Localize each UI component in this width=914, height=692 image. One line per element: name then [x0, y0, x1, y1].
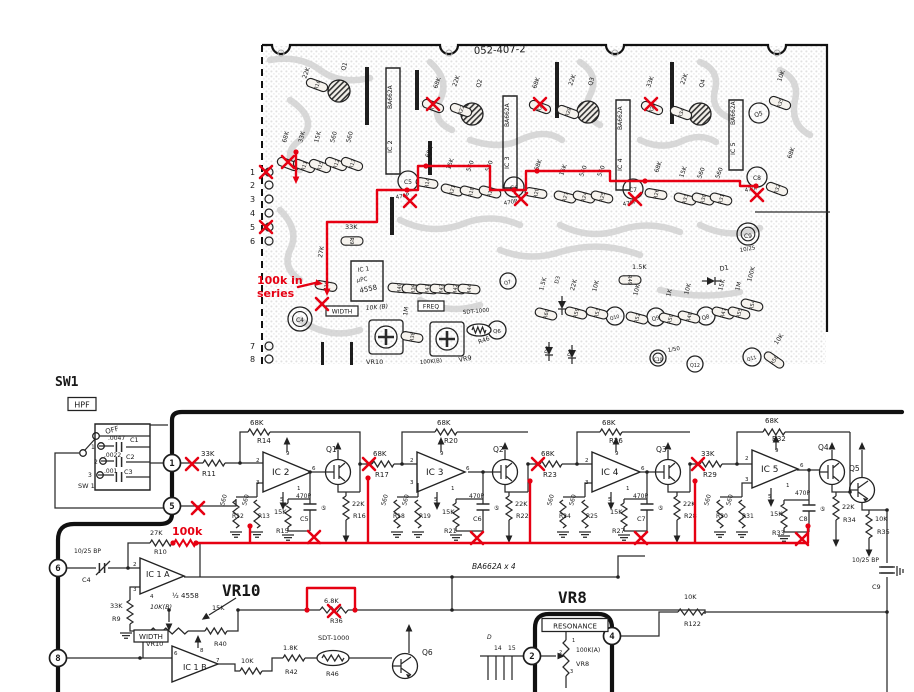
schematic-t-246: Q4 [818, 443, 829, 452]
schematic-dot-295 [170, 540, 175, 545]
schematic-t-264: 15K [212, 604, 225, 612]
pcb-t-143: IC 5 [729, 142, 737, 155]
sw1-title: SW1 [55, 375, 79, 390]
pad-2-label: 2 [250, 181, 255, 190]
schematic-t-258: 33K [110, 602, 123, 610]
r49-component: R49 [619, 275, 641, 285]
width-box: WIDTH [332, 309, 353, 316]
schematic-t-145: 3 [88, 472, 92, 479]
schematic-t-200: R23 [543, 471, 557, 479]
schematic-t-151: .001 [104, 468, 118, 475]
schematic-t-215: R27 [612, 527, 625, 535]
vr8-title: VR8 [558, 588, 587, 607]
scanned-service-manual-page: 12345678R16R17R22R23R28R29R34R35R32R11R1… [0, 0, 914, 692]
schematic-t-183: 9 [440, 451, 444, 457]
schematic-t-228: 3 [745, 477, 749, 483]
schematic-t-259: R9 [112, 615, 121, 623]
schematic-t-253: IC 1 A [146, 570, 170, 579]
q4-body [689, 103, 711, 125]
schematic-t-289: 10K [684, 593, 697, 601]
schematic-t-239: 470P [795, 490, 810, 497]
ba662a-note: BA662A x 4 [472, 562, 516, 571]
schematic-t-263: VR10 [146, 640, 163, 648]
schematic-t-149: .0022 [104, 452, 121, 459]
schematic-t-173: 22K [352, 500, 365, 508]
hpf-box: HPF [74, 400, 90, 409]
schematic-t-272: R42 [285, 668, 298, 676]
pcb-rect-23 [415, 70, 419, 110]
pcb-dot-217 [404, 187, 409, 192]
schematic-jd-128 [885, 610, 889, 614]
schematic-t-154: R11 [202, 470, 216, 478]
schematic-t-248: 10/25 BP [74, 548, 101, 555]
node-6: 6 [55, 564, 60, 574]
pad-8-label: 8 [250, 355, 255, 364]
schematic-t-196: 22K [515, 500, 528, 508]
schematic-t-223: R29 [703, 471, 717, 479]
pcb-t-205: C10 [654, 357, 663, 363]
schematic-dot-296 [193, 540, 198, 545]
node-8: 8 [55, 654, 60, 664]
pcb-t-212: Q12 [690, 363, 700, 369]
schematic-t-240: ⑤ [820, 506, 825, 513]
schematic-jd-116 [358, 462, 362, 466]
schematic-t-208: 6 [641, 466, 645, 472]
schematic-t-203: IC 4 [601, 468, 619, 478]
schematic-t-170: 470P [296, 493, 311, 500]
pcb-dot-219 [511, 187, 516, 192]
schematic-t-242: 22K [842, 503, 855, 511]
pcb-t-204: C4 [296, 317, 304, 324]
schematic-t-268: 8 [200, 648, 204, 654]
schematic-t-174: R16 [353, 512, 366, 520]
schematic-t-231: 6 [800, 463, 804, 469]
schematic-t-168: 15K [274, 508, 287, 516]
pcb-t-206: Q6 [493, 329, 501, 335]
schematic-t-257: ½ 4558 [172, 592, 199, 600]
mod-note-line1: 100k in [257, 274, 303, 287]
schematic-t-194: ⑤ [494, 505, 499, 512]
schematic-t-238: R33 [772, 529, 785, 537]
schematic-t-207: 5 [608, 497, 612, 503]
q1-body [328, 80, 350, 102]
schematic-jd-130 [450, 608, 454, 612]
schematic-jd-119 [575, 462, 579, 466]
schematic-dot-302 [304, 607, 309, 612]
schematic-t-267: 6 [174, 651, 178, 657]
pcb-t-168: 33K [345, 223, 358, 231]
schematic-t-157: IC 2 [272, 468, 290, 478]
mod-note-line2: series [257, 287, 295, 300]
schematic-t-156: R14 [257, 437, 271, 445]
schematic-t-161: 5 [280, 497, 284, 503]
pcb-t-127: BA662A [387, 84, 394, 109]
pcb-dot-221 [642, 178, 647, 183]
schematic-t-214: 15K [610, 508, 623, 516]
pcb-t-133: IC 3 [503, 156, 511, 169]
pcb-dot-222 [753, 183, 758, 188]
schematic-t-290: R122 [684, 620, 701, 628]
schematic-t-155: 68K [250, 419, 264, 427]
schematic-t-236: R31 [742, 513, 754, 520]
schematic-t-206: 9 [615, 451, 619, 457]
schematic-t-199: 68K [541, 450, 555, 458]
schematic-t-217: ⑤ [658, 505, 663, 512]
schematic-t-195: C6 [473, 515, 482, 523]
schematic-t-218: C7 [637, 515, 646, 523]
schematic-t-143: 1 [91, 444, 95, 451]
schematic-jd-113 [126, 566, 130, 570]
schematic-dot-299 [527, 478, 532, 483]
schematic-t-237: 15K [770, 510, 783, 518]
schematic-t-229: 9 [775, 448, 779, 454]
schematic-t-186: 1 [451, 486, 455, 492]
schematic-t-150: C2 [126, 453, 135, 461]
schematic-jd-118 [526, 462, 530, 466]
schematic-jd-117 [400, 462, 404, 466]
schematic-t-190: R19 [419, 513, 431, 520]
schematic-t-244: 10K [875, 515, 888, 523]
schematic-jd-115 [238, 461, 242, 465]
schematic-t-280: 14 [494, 645, 502, 652]
schematic-t-288: 3 [570, 669, 573, 675]
pcb-dot-218 [423, 163, 428, 168]
schematic-t-175: Q1 [326, 445, 337, 454]
schematic-dot-301 [805, 523, 810, 528]
schematic-t-180: IC 3 [426, 468, 444, 478]
schematic-t-213: R25 [586, 513, 598, 520]
schematic-t-188: R18 [393, 513, 405, 520]
schematic-t-209: 1 [626, 486, 630, 492]
pcb-dot-216 [293, 149, 298, 154]
schematic-jd-127 [885, 508, 889, 512]
schematic-t-202: R26 [609, 437, 623, 445]
schematic-t-171: ⑤ [321, 505, 326, 512]
schematic-t-181: 2 [410, 458, 414, 464]
pcb-t-137: BA662A [617, 105, 624, 130]
schematic-t-285: VR8 [576, 660, 589, 668]
schematic-t-198: Q2 [493, 445, 504, 454]
schematic-jd-120 [688, 462, 692, 466]
pad-5-label: 5 [250, 223, 255, 232]
schematic-jd-125 [807, 468, 811, 472]
freq-box: FREQ [423, 304, 439, 311]
schematic-t-227: 2 [745, 456, 749, 462]
schematic-t-277: R36 [330, 617, 343, 625]
pad-3-label: 3 [250, 195, 255, 204]
node-5: 5 [169, 502, 174, 512]
pcb-t-128: IC 2 [386, 140, 394, 153]
schematic-t-230: 5 [768, 494, 772, 500]
schematic-t-146: SW 1 [78, 482, 95, 490]
pad-7-label: 7 [250, 342, 255, 351]
schematic-t-269: 7 [216, 658, 220, 664]
schematic-jd-121 [735, 462, 739, 466]
schematic-t-163: 1 [297, 486, 301, 492]
schematic-t-169: R15 [276, 527, 289, 535]
schematic-t-192: R21 [444, 527, 457, 535]
pad-6-label: 6 [250, 237, 255, 246]
schematic-t-226: IC 5 [761, 465, 779, 475]
schematic-t-292: C9 [872, 583, 881, 591]
schematic-t-225: R32 [772, 435, 786, 443]
schematic-t-204: 2 [585, 458, 589, 464]
mod-100k-label: 100k [172, 525, 203, 538]
schematic-t-250: 27K [150, 529, 163, 537]
schematic-t-167: R13 [258, 513, 270, 520]
schematic-jd-129 [450, 575, 454, 579]
schematic-t-162: 6 [312, 466, 316, 472]
schematic-jd-131 [616, 575, 620, 579]
pcb-t-175: VR10 [366, 358, 383, 366]
pcb-pill-112-label: R44 [467, 283, 474, 294]
schematic-t-144: 2 [94, 459, 98, 466]
schematic-dot-297 [247, 523, 252, 528]
schematic-t-286: 1 [572, 638, 575, 644]
pcb-rect-29 [350, 342, 353, 365]
node-4: 4 [609, 632, 615, 642]
schematic-t-232: 1 [786, 483, 790, 489]
schematic-t-185: 6 [466, 466, 470, 472]
pcb-rect-28 [321, 342, 324, 365]
schematic-t-284: 100K(A) [576, 647, 600, 654]
schematic-dot-300 [692, 478, 697, 483]
schematic-jd-114 [138, 656, 142, 660]
pcb-t-203: C9 [744, 233, 752, 240]
schematic-t-265: R40 [214, 640, 227, 648]
schematic-jd-133 [236, 608, 240, 612]
pcb-pill-104-label: R9 [348, 238, 354, 245]
schematic-t-201: 68K [602, 419, 616, 427]
schematic-t-177: R17 [375, 471, 389, 479]
pcb-t-184: D1 [719, 264, 729, 273]
schematic-t-274: R46 [326, 670, 339, 678]
schematic-t-205: 3 [585, 480, 589, 486]
schematic-t-249: C4 [82, 576, 91, 584]
pcb-t-199: C5 [404, 179, 412, 186]
schematic-t-197: R22 [516, 512, 529, 520]
schematic-t-271: 1.8K [283, 644, 298, 652]
node-1: 1 [169, 459, 174, 469]
vr10-title: VR10 [222, 581, 261, 600]
schematic-t-179: R20 [444, 437, 458, 445]
schematic-t-221: Q3 [656, 445, 667, 454]
schematic-t-241: C8 [799, 515, 808, 523]
schematic-t-251: R10 [154, 548, 167, 556]
schematic-jd-123 [481, 470, 485, 474]
schematic-t-178: 68K [437, 419, 451, 427]
schematic-t-222: 33K [701, 450, 715, 458]
pcb-t-138: IC 4 [616, 158, 624, 171]
schematic-t-255: 3 [133, 587, 137, 593]
circuit-diagram: 12345678R16R17R22R23R28R29R34R35R32R11R1… [0, 0, 914, 692]
schematic-t-193: 470P [469, 493, 484, 500]
schematic-t-262: 10K(B) [150, 603, 172, 611]
schematic-t-153: 33K [201, 450, 215, 458]
pcb-rect-22 [365, 67, 369, 125]
schematic-t-243: R34 [843, 516, 856, 524]
schematic-t-245: R35 [877, 528, 890, 536]
schematic-t-191: 15K [442, 508, 455, 516]
pcb-t-132: BA662A [504, 102, 511, 127]
pad-4-label: 4 [250, 209, 255, 218]
schematic-t-276: 6.8K [324, 597, 339, 605]
schematic-t-160: 9 [286, 451, 290, 457]
pcb-t-142: BA662A [730, 100, 737, 125]
schematic-jd-126 [848, 490, 852, 494]
schematic-t-254: 2 [133, 562, 137, 568]
pcb-pill-114-label: R49 [626, 275, 632, 285]
pcb-t-202: C8 [753, 175, 761, 182]
schematic-t-165: R12 [232, 513, 244, 520]
node-2: 2 [529, 652, 534, 662]
schematic-t-147: .0047 [108, 435, 125, 442]
schematic-t-211: R24 [559, 513, 571, 520]
schematic-t-172: C5 [300, 515, 309, 523]
schematic-dot-298 [365, 475, 370, 480]
schematic-t-247: Q5 [849, 464, 860, 473]
q3-body [577, 101, 599, 123]
board-label: 052-407-2 [474, 44, 526, 57]
schematic-t-273: SDT-1000 [318, 634, 349, 642]
schematic-t-158: 2 [256, 458, 260, 464]
schematic-t-234: R30 [716, 513, 728, 520]
schematic-t-256: 4 [150, 594, 154, 600]
schematic-t-266: IC 1 B [183, 663, 207, 672]
schematic-t-281: 15 [508, 645, 516, 652]
schematic-t-291: 10/25 BP [852, 557, 879, 564]
schematic-t-148: C1 [130, 436, 139, 444]
schematic-t-270: 10K [241, 657, 254, 665]
schematic-t-279: D [487, 634, 492, 641]
schematic-t-275: Q6 [422, 648, 433, 657]
schematic-t-152: C3 [124, 468, 133, 476]
schematic-t-184: 5 [434, 497, 438, 503]
schematic-jd-124 [645, 470, 649, 474]
r9-component: R9 [341, 237, 363, 245]
pcb-dot-220 [534, 168, 539, 173]
schematic-t-287: 2 [559, 650, 562, 656]
schematic-t-224: 68K [765, 417, 779, 425]
pad-1-label: 1 [250, 168, 255, 177]
schematic-t-182: 3 [410, 480, 414, 486]
pcb-rect-26 [390, 197, 394, 235]
pcb-t-183: 1.5K [632, 263, 647, 271]
schematic-t-159: 3 [256, 480, 260, 486]
schematic-t-216: 470P [633, 493, 648, 500]
resonance-box: RESONANCE [553, 622, 597, 630]
schematic-dot-303 [352, 607, 357, 612]
